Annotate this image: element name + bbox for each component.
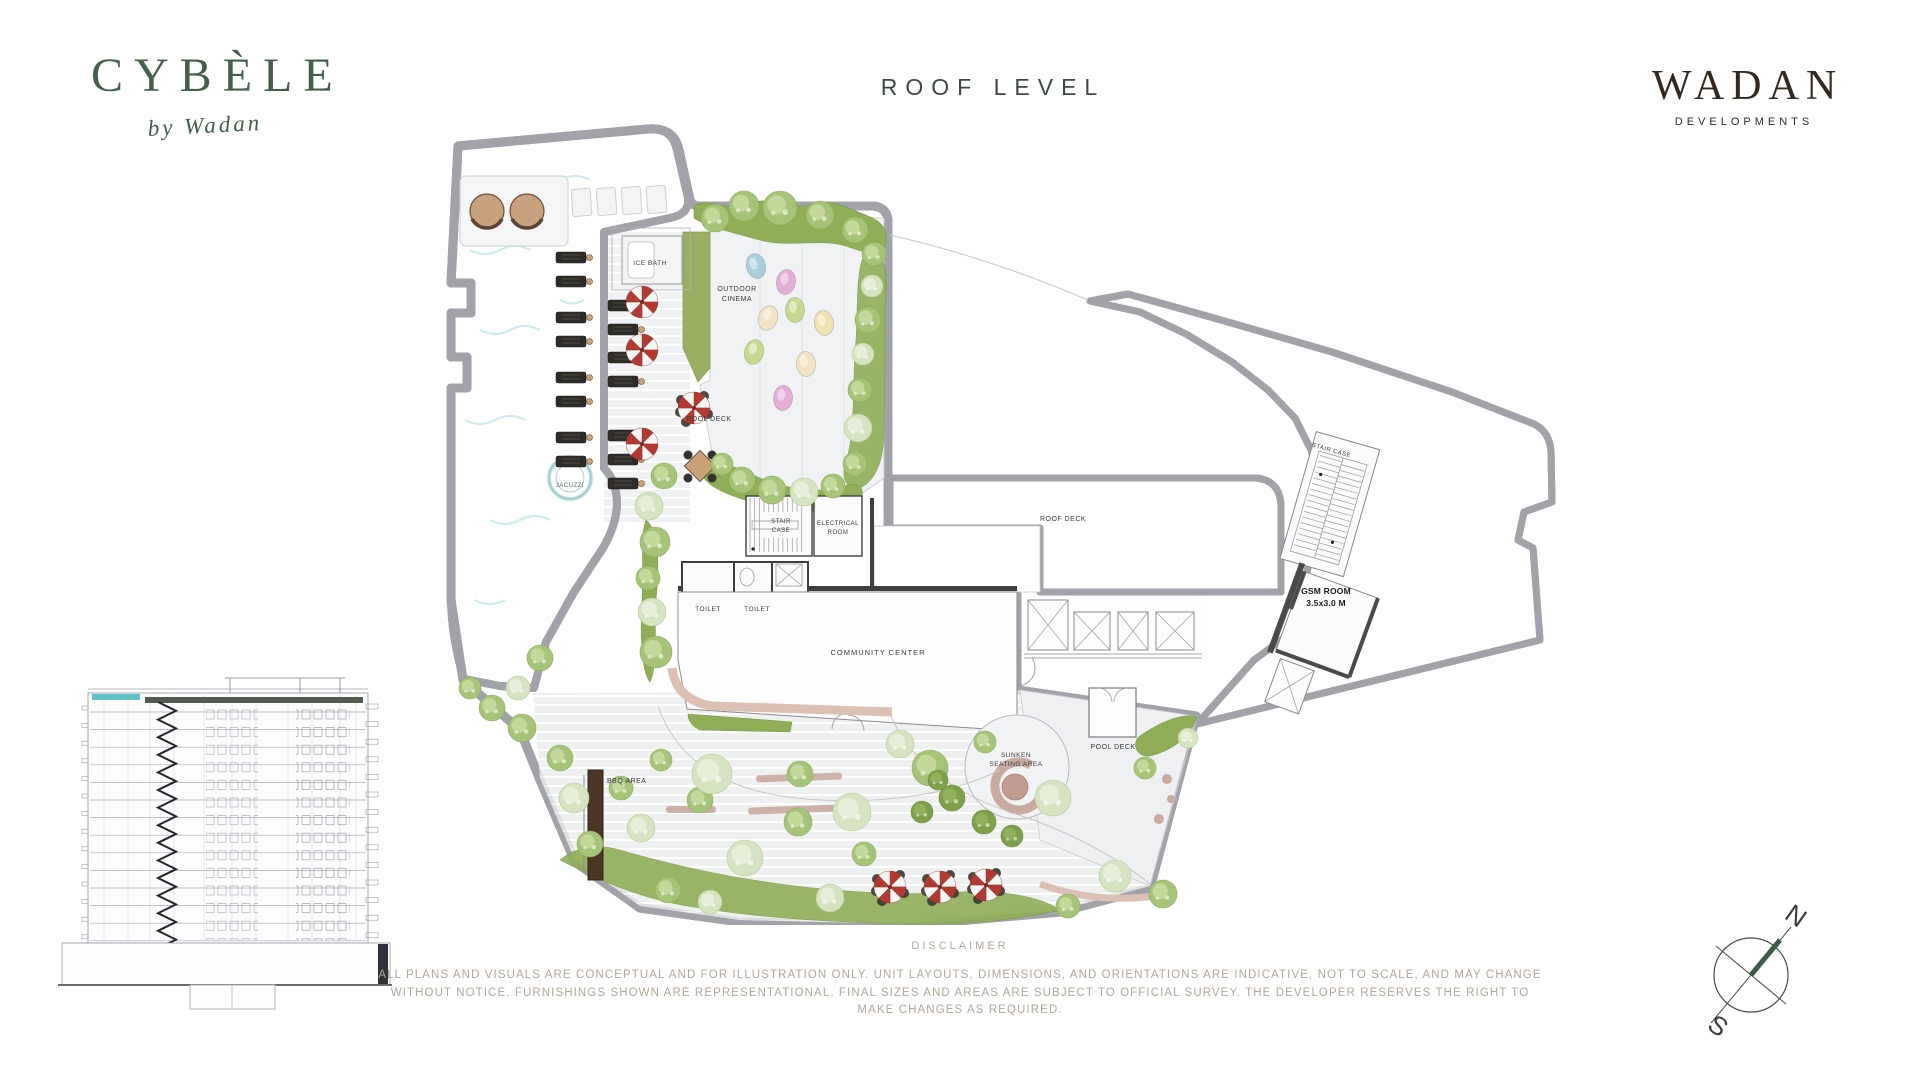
compass-north-label: N bbox=[1780, 898, 1813, 933]
tree bbox=[692, 754, 732, 794]
tree bbox=[843, 452, 867, 476]
tree bbox=[763, 191, 797, 225]
tree bbox=[547, 745, 573, 771]
sun-lounger bbox=[556, 396, 593, 407]
tree bbox=[638, 598, 666, 626]
sun-lounger bbox=[556, 276, 593, 287]
roof-band bbox=[145, 697, 363, 703]
roof-units bbox=[1022, 596, 1206, 658]
label-electrical-2: ROOM bbox=[828, 530, 849, 536]
tree bbox=[852, 343, 874, 365]
tree bbox=[508, 714, 536, 742]
label-ice-bath: ICE BATH bbox=[633, 260, 667, 267]
tree bbox=[784, 808, 812, 836]
sun-lounger bbox=[556, 312, 593, 323]
tree bbox=[855, 307, 881, 333]
tree bbox=[1134, 757, 1156, 779]
tree bbox=[974, 731, 996, 753]
compass: N S bbox=[1688, 893, 1823, 1043]
tree bbox=[635, 492, 663, 520]
tree bbox=[729, 467, 755, 493]
label-electrical-1: ELECTRICAL bbox=[817, 521, 859, 527]
tree bbox=[577, 831, 603, 857]
compass-needle bbox=[1751, 940, 1780, 975]
label-toilet-right: TOILET bbox=[744, 606, 770, 613]
tree bbox=[655, 877, 681, 903]
label-pool-deck-upper: POOL DECK bbox=[686, 416, 731, 423]
project-logo: CYBÈLE by Wadan bbox=[80, 48, 330, 139]
tree bbox=[758, 476, 786, 504]
sun-lounger bbox=[556, 336, 593, 347]
tree bbox=[886, 730, 914, 758]
tree bbox=[1056, 894, 1080, 918]
label-outdoor-cinema-2: CINEMA bbox=[722, 296, 752, 303]
tree bbox=[972, 810, 996, 834]
tree bbox=[787, 761, 813, 787]
tree bbox=[651, 463, 677, 489]
developer-logo-name: WADAN bbox=[1634, 62, 1854, 110]
tree bbox=[459, 677, 481, 699]
label-sunken-1: SUNKEN bbox=[1001, 752, 1031, 759]
label-gsm-1: GSM ROOM bbox=[1301, 586, 1351, 596]
in-pool-loungers bbox=[571, 185, 667, 216]
ice-bath-room bbox=[612, 228, 690, 290]
tree bbox=[844, 414, 872, 442]
disclaimer-body: ALL PLANS AND VISUALS ARE CONCEPTUAL AND… bbox=[375, 967, 1545, 1020]
tree bbox=[861, 275, 883, 297]
tree bbox=[816, 884, 844, 912]
label-jacuzzi: JACUZZI bbox=[556, 483, 584, 489]
disclaimer-block: DISCLAIMER ALL PLANS AND VISUALS ARE CON… bbox=[375, 940, 1545, 1020]
roof-pool bbox=[92, 694, 140, 700]
developer-logo-subtitle: DEVELOPMENTS bbox=[1634, 116, 1854, 128]
tree bbox=[833, 793, 871, 831]
bean-bag bbox=[786, 298, 805, 323]
service-corridor bbox=[874, 526, 1040, 592]
tree bbox=[862, 242, 886, 266]
tree bbox=[650, 749, 672, 771]
roof-level-floor-plan: ICE BATH OUTDOOR CINEMA POOL DECK JACUZZ… bbox=[430, 95, 1590, 925]
tree bbox=[701, 204, 729, 232]
tree bbox=[928, 770, 948, 790]
tree bbox=[729, 191, 759, 221]
tree bbox=[559, 783, 589, 813]
tree bbox=[911, 801, 933, 823]
building-section-drawing bbox=[55, 650, 400, 1050]
tree bbox=[711, 453, 733, 475]
label-toilet-left: TOILET bbox=[695, 606, 721, 613]
tree bbox=[842, 217, 868, 243]
label-stair-case-1: STAIR bbox=[771, 519, 791, 525]
tree bbox=[1035, 780, 1071, 816]
sun-lounger bbox=[556, 432, 593, 443]
umbrella bbox=[626, 286, 658, 318]
tree bbox=[852, 842, 876, 866]
tree bbox=[821, 474, 845, 498]
umbrella bbox=[626, 334, 658, 366]
project-logo-name: CYBÈLE bbox=[80, 48, 330, 103]
developer-logo: WADAN DEVELOPMENTS bbox=[1634, 62, 1854, 128]
tree bbox=[640, 527, 670, 557]
tree bbox=[636, 566, 660, 590]
tree bbox=[506, 676, 530, 700]
tree bbox=[1178, 728, 1198, 748]
label-stair-case-2: CASE bbox=[772, 528, 790, 534]
label-community-center: COMMUNITY CENTER bbox=[830, 648, 925, 657]
project-logo-tagline: by Wadan bbox=[79, 106, 330, 145]
tree bbox=[1149, 880, 1177, 908]
tree bbox=[479, 695, 505, 721]
label-bbq-area: BBQ AREA bbox=[607, 778, 646, 785]
tree bbox=[640, 636, 672, 668]
compass-south-label: S bbox=[1702, 1008, 1733, 1043]
tree bbox=[848, 378, 872, 402]
tree bbox=[790, 478, 818, 506]
tree bbox=[627, 814, 655, 842]
label-sunken-2: SEATING AREA bbox=[989, 761, 1042, 768]
umbrella bbox=[626, 428, 658, 460]
label-outdoor-cinema-1: OUTDOOR bbox=[717, 286, 756, 293]
tree bbox=[527, 645, 553, 671]
sun-lounger bbox=[556, 252, 593, 263]
label-pool-deck-lower: POOL DECK bbox=[1090, 744, 1135, 751]
label-roof-deck: ROOF DECK bbox=[1040, 516, 1086, 523]
tree bbox=[727, 840, 763, 876]
tree bbox=[806, 201, 834, 229]
disclaimer-title: DISCLAIMER bbox=[375, 940, 1545, 952]
tree bbox=[1001, 825, 1023, 847]
label-gsm-2: 3.5x3.0 M bbox=[1306, 598, 1346, 608]
tree bbox=[698, 890, 722, 914]
tree bbox=[1099, 860, 1131, 892]
sun-lounger bbox=[556, 372, 593, 383]
